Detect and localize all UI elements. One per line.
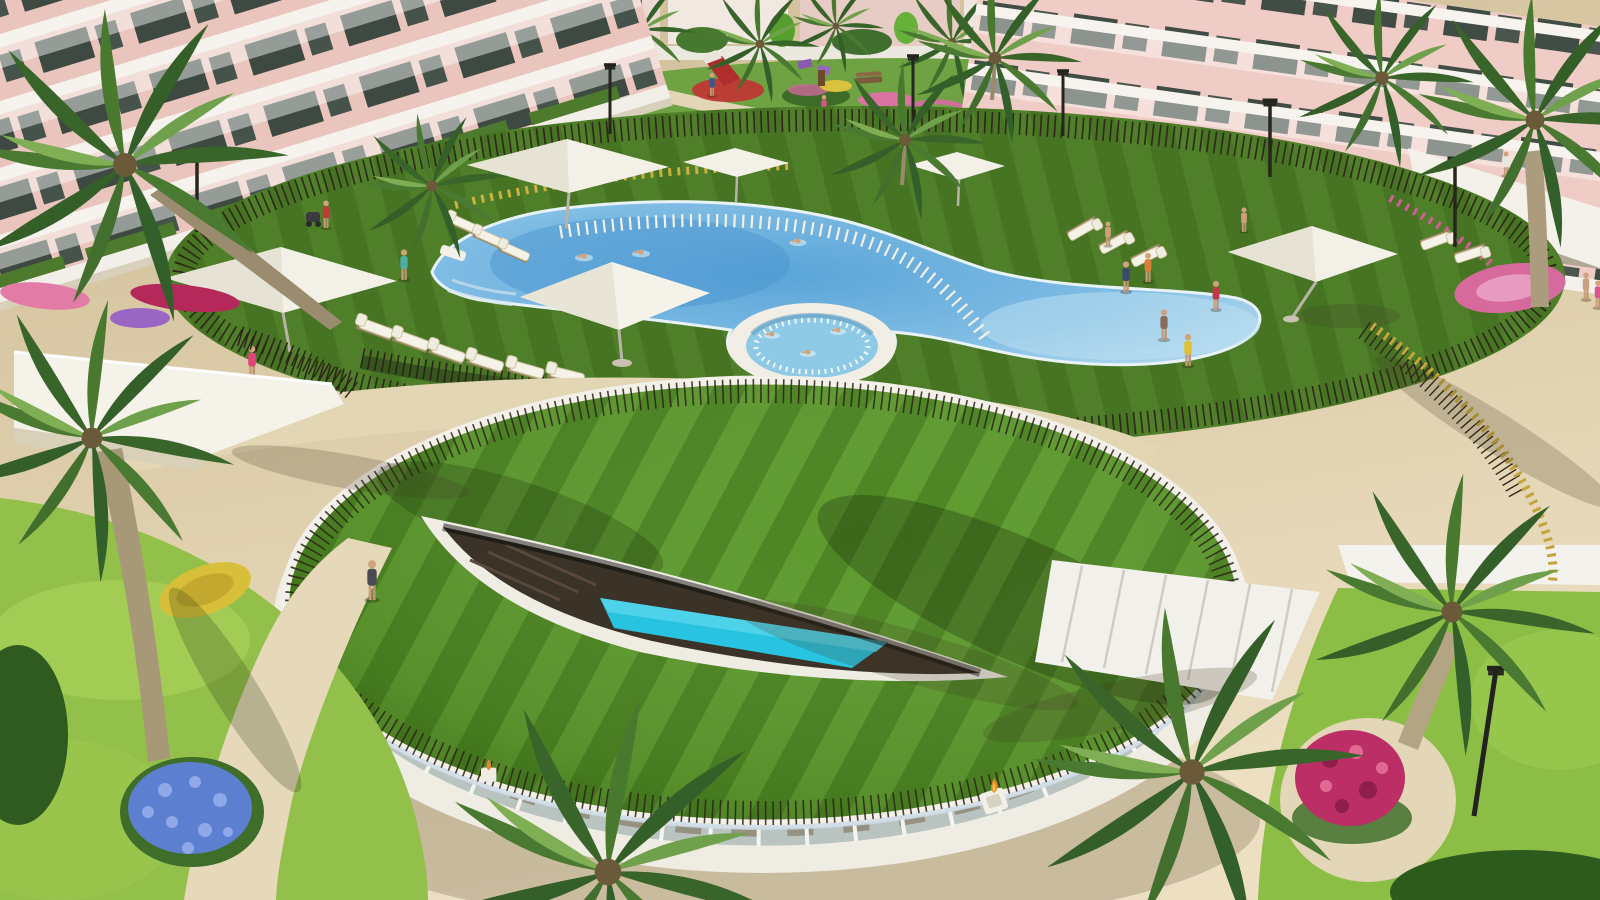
render-viewport: [0, 0, 1600, 900]
resort-render: [0, 0, 1600, 900]
blue-flower-bed: [120, 757, 264, 867]
spa-pool: [728, 303, 896, 387]
